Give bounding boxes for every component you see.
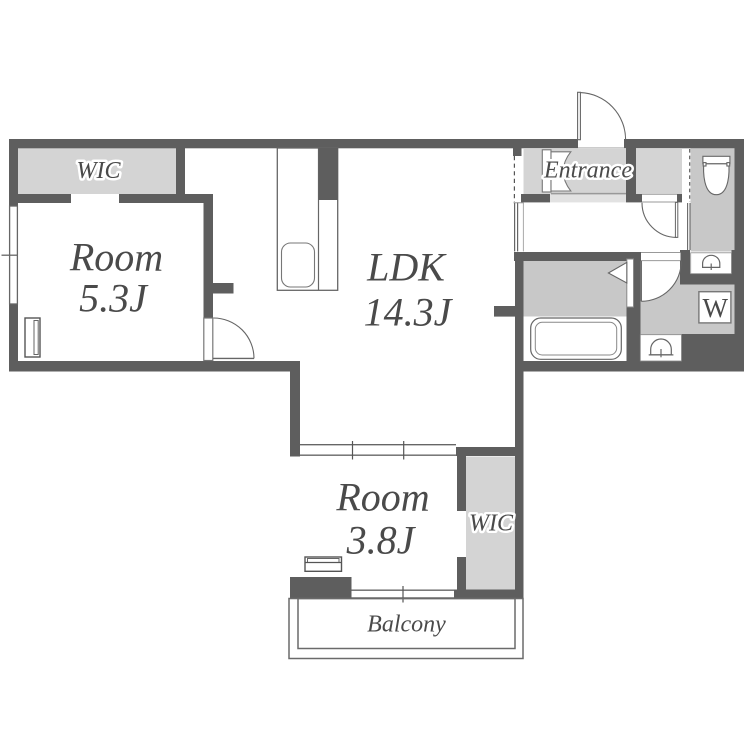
svg-text:5.3J: 5.3J (79, 276, 149, 321)
svg-text:Room: Room (335, 475, 429, 520)
svg-text:3.8J: 3.8J (346, 518, 417, 563)
svg-text:Entrance: Entrance (543, 158, 632, 184)
svg-text:W: W (702, 293, 728, 323)
svg-text:Balcony: Balcony (367, 612, 446, 638)
svg-text:14.3J: 14.3J (364, 290, 454, 335)
svg-text:WIC: WIC (469, 511, 514, 537)
svg-text:WIC: WIC (77, 158, 122, 184)
svg-text:LDK: LDK (366, 245, 447, 290)
svg-text:Room: Room (69, 235, 163, 280)
